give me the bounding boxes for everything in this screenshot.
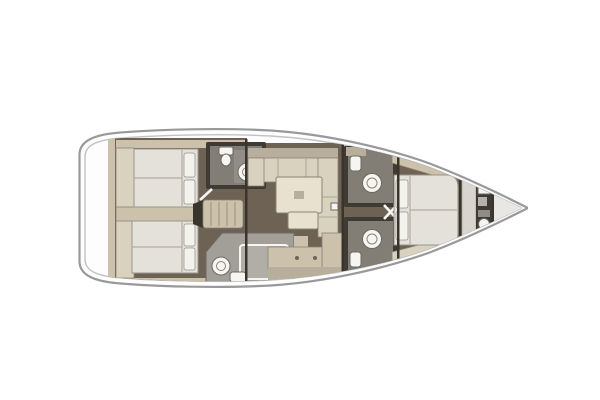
galley-knob <box>313 256 317 260</box>
steps-cap <box>193 200 203 228</box>
yacht-floor-plan <box>0 0 600 400</box>
bow-section <box>459 162 526 254</box>
table-logo <box>294 191 304 199</box>
toilet-icon <box>350 252 361 267</box>
toilet-bowl-icon <box>221 154 231 166</box>
toilet-icon <box>350 156 361 171</box>
aft-cabin-port-berth <box>134 149 198 207</box>
aft-cabin-starboard-berth <box>132 221 198 273</box>
companionway-steps <box>193 200 243 228</box>
pillow <box>184 153 195 177</box>
pillow <box>184 180 195 204</box>
aft-cabin-divider-shelf <box>116 207 198 221</box>
pillow <box>184 248 195 270</box>
sink-icon <box>363 230 382 249</box>
toilet-icon <box>230 272 246 282</box>
bow-vanity-band <box>462 162 476 254</box>
floor-plan-drawing <box>0 0 600 400</box>
stern-bulkhead <box>108 137 115 279</box>
bow-fixture <box>478 210 490 217</box>
bulkhead-aft-saloon <box>245 139 248 286</box>
bulkhead-heads-forward <box>397 150 400 265</box>
galley-knob <box>295 256 299 260</box>
bulkhead-saloon-heads <box>342 144 345 284</box>
sink-icon <box>363 174 382 193</box>
saloon-stool <box>288 212 318 229</box>
aft-cabin-port-locker <box>116 148 134 208</box>
aft-cabin-starboard-locker <box>116 220 134 278</box>
mast-step <box>331 203 338 210</box>
sofa-corner-seat <box>248 158 264 186</box>
pillow <box>184 224 195 246</box>
sink-icon <box>212 257 230 275</box>
bow-fixture <box>478 197 487 206</box>
